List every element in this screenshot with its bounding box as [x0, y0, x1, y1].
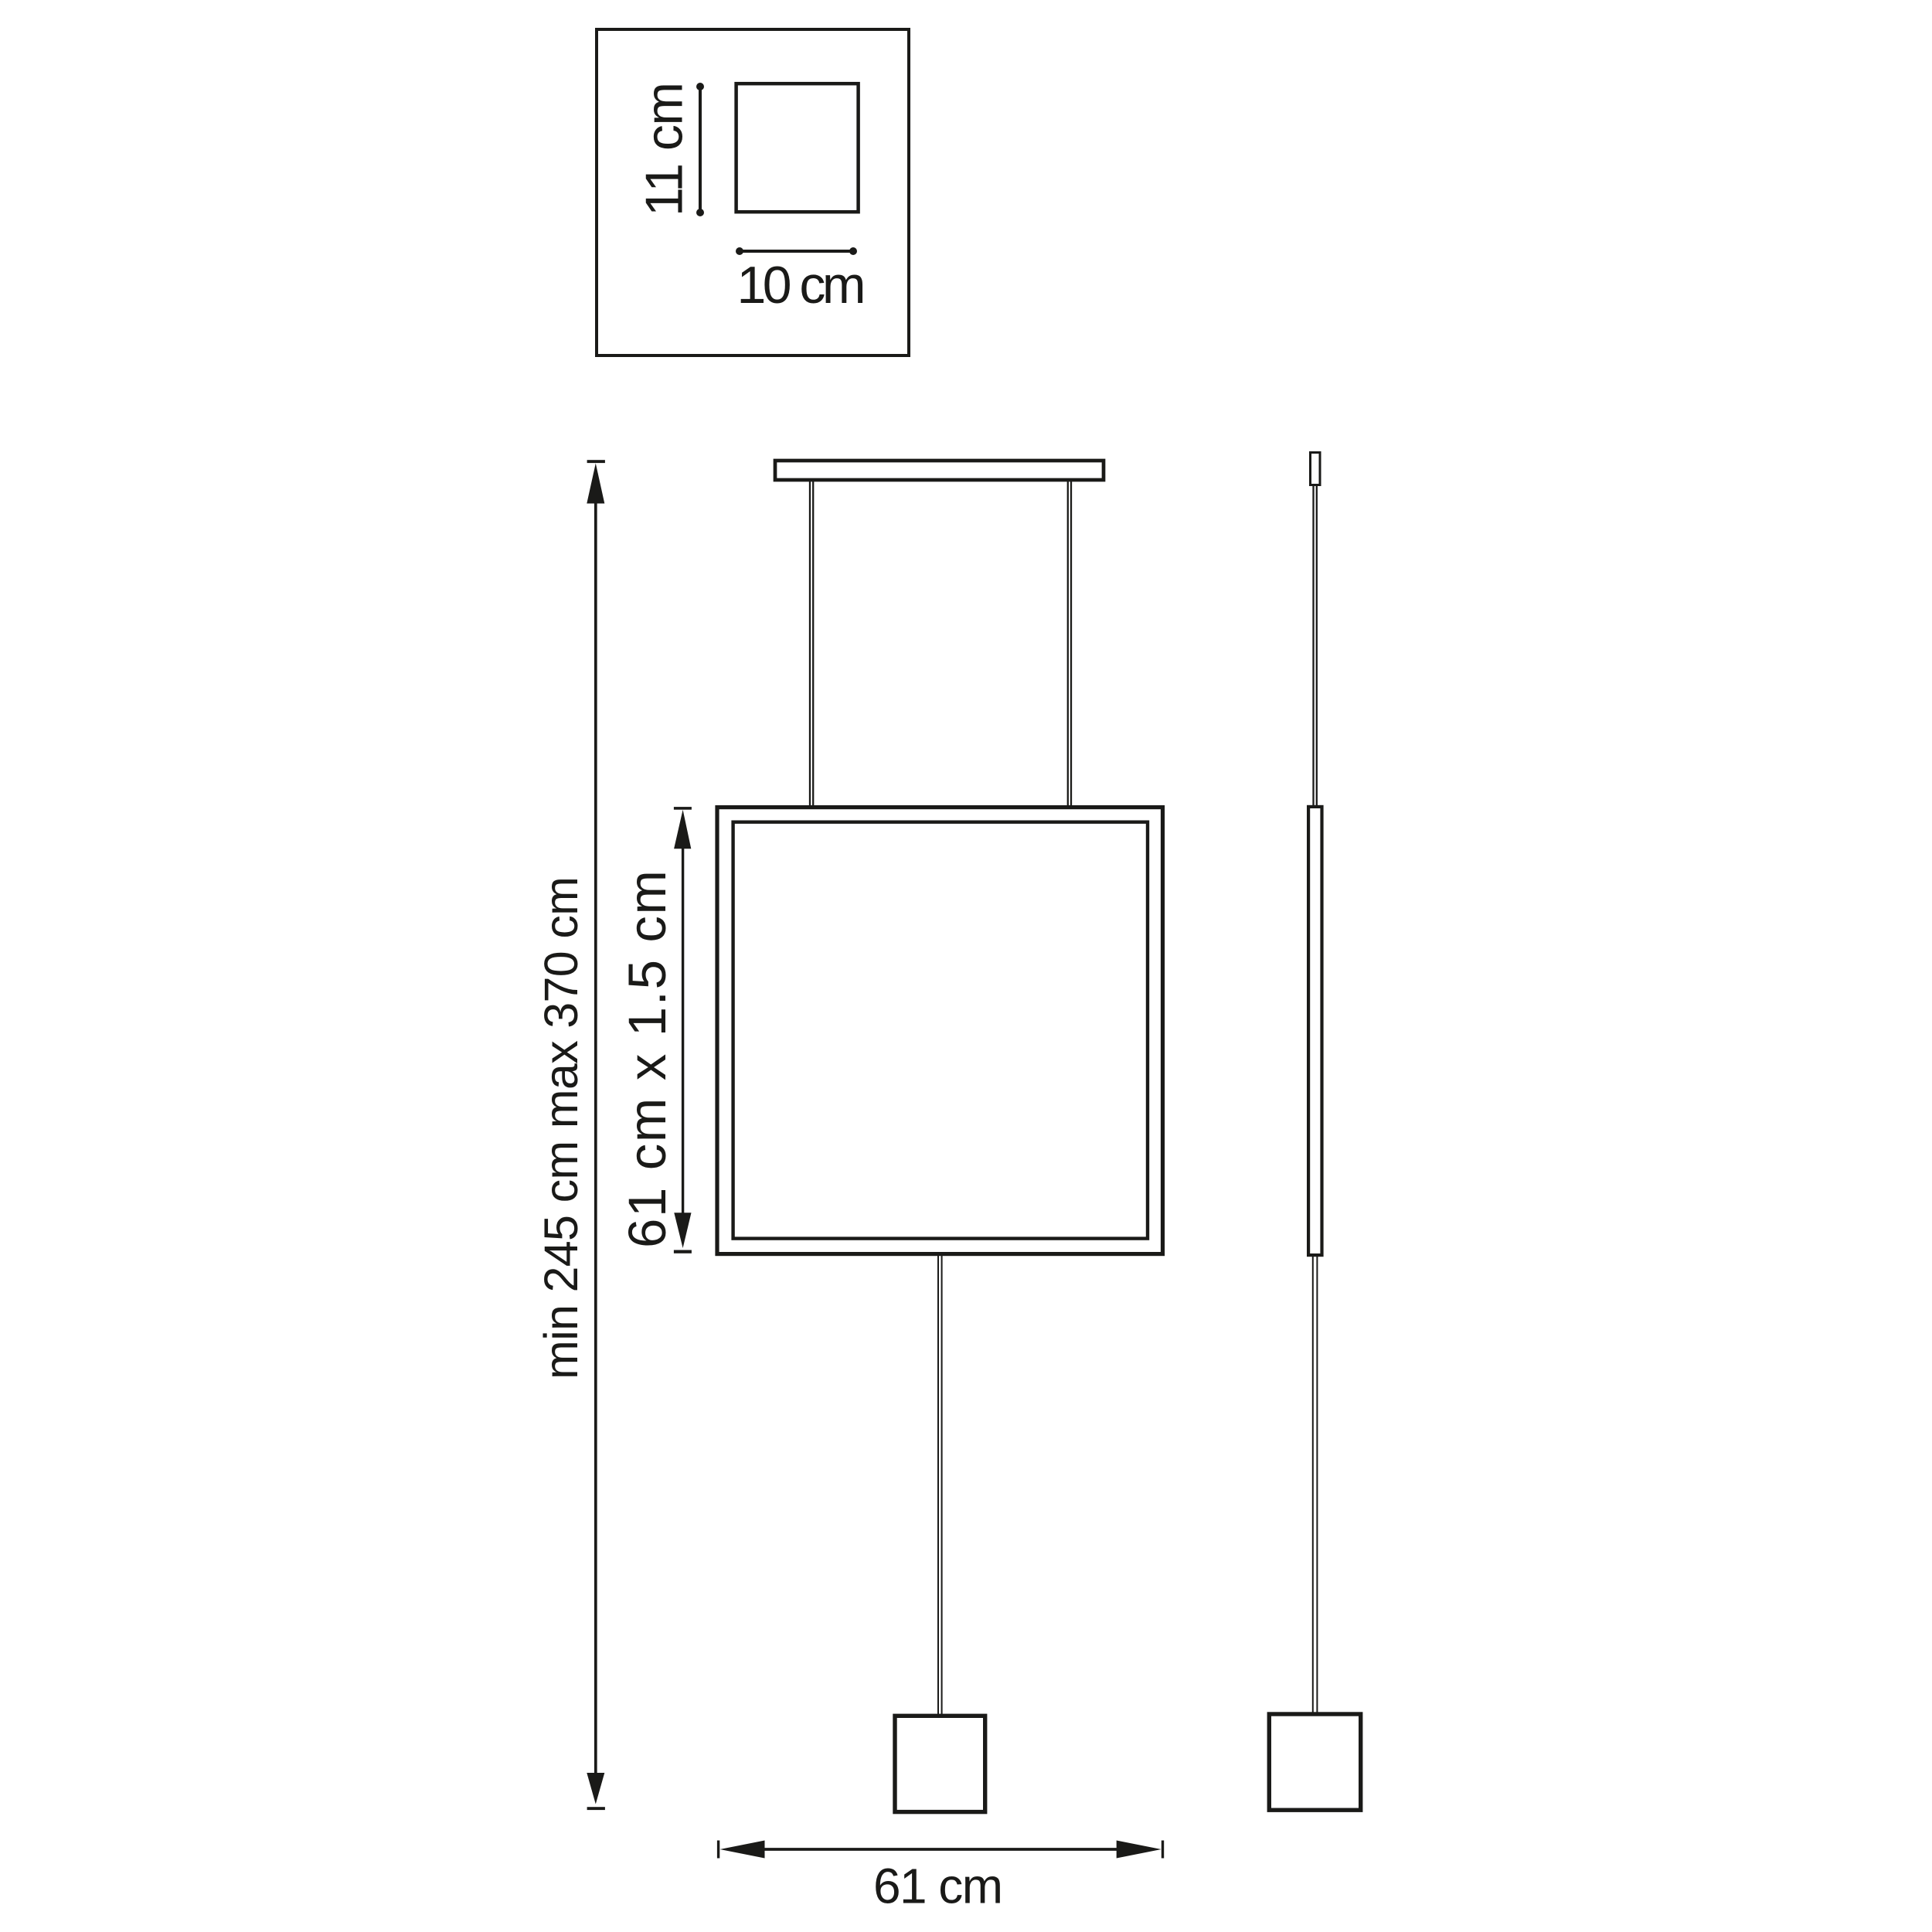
svg-text:10 cm: 10 cm	[737, 256, 866, 315]
svg-text:61 cm: 61 cm	[873, 1859, 1003, 1914]
svg-text:61 cm x 1.5 cm: 61 cm x 1.5 cm	[617, 870, 677, 1248]
svg-text:min 245 cm max 370 cm: min 245 cm max 370 cm	[535, 876, 587, 1379]
svg-text:11 cm: 11 cm	[635, 82, 694, 216]
